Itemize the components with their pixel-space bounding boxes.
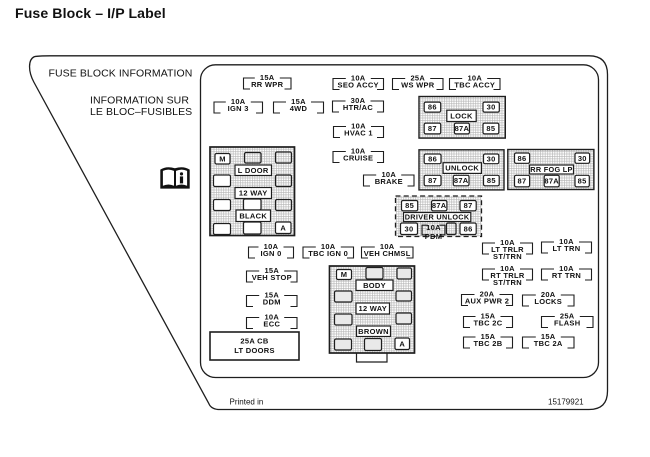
svg-text:Fuse Block – I/P Label: Fuse Block – I/P Label bbox=[15, 5, 166, 21]
svg-text:LE BLOC–FUSIBLES: LE BLOC–FUSIBLES bbox=[90, 106, 192, 118]
svg-text:TBC 2C: TBC 2C bbox=[474, 318, 503, 327]
svg-text:FUSE BLOCK INFORMATION: FUSE BLOCK INFORMATION bbox=[49, 68, 193, 80]
svg-text:87A: 87A bbox=[454, 176, 469, 185]
svg-text:ST/TRN: ST/TRN bbox=[493, 278, 522, 287]
svg-text:25A CB: 25A CB bbox=[240, 336, 268, 345]
svg-text:DDM: DDM bbox=[263, 297, 281, 306]
svg-text:RT TRN: RT TRN bbox=[552, 271, 581, 280]
svg-text:BROWN: BROWN bbox=[358, 327, 389, 336]
svg-text:RR WPR: RR WPR bbox=[251, 80, 283, 89]
svg-text:87: 87 bbox=[428, 176, 437, 185]
svg-text:4WD: 4WD bbox=[290, 104, 308, 113]
svg-text:IGN 3: IGN 3 bbox=[228, 104, 249, 113]
svg-text:FLASH: FLASH bbox=[554, 318, 581, 327]
svg-text:15179921: 15179921 bbox=[548, 397, 584, 406]
svg-text:87A: 87A bbox=[432, 201, 447, 210]
svg-text:M: M bbox=[219, 154, 226, 163]
svg-text:PDM: PDM bbox=[425, 232, 443, 241]
svg-text:WS WPR: WS WPR bbox=[401, 80, 435, 89]
svg-text:87A: 87A bbox=[544, 177, 559, 186]
svg-text:LT TRN: LT TRN bbox=[553, 244, 581, 253]
svg-text:LT DOORS: LT DOORS bbox=[234, 346, 275, 355]
svg-text:86: 86 bbox=[518, 154, 527, 163]
svg-text:30: 30 bbox=[405, 224, 414, 233]
svg-text:86: 86 bbox=[428, 154, 437, 163]
svg-text:85: 85 bbox=[486, 124, 495, 133]
svg-text:HTR/AC: HTR/AC bbox=[343, 103, 373, 112]
svg-text:ST/TRN: ST/TRN bbox=[493, 252, 522, 261]
svg-text:Printed in: Printed in bbox=[230, 398, 264, 407]
svg-text:BODY: BODY bbox=[363, 281, 386, 290]
svg-text:TBC ACCY: TBC ACCY bbox=[454, 80, 495, 89]
svg-text:DRIVER UNLOCK: DRIVER UNLOCK bbox=[405, 213, 470, 222]
svg-text:BLACK: BLACK bbox=[239, 211, 267, 220]
svg-text:LOCK: LOCK bbox=[450, 112, 473, 121]
svg-text:86: 86 bbox=[428, 103, 437, 112]
svg-text:L DOOR: L DOOR bbox=[238, 166, 269, 175]
svg-text:12 WAY: 12 WAY bbox=[358, 304, 387, 313]
svg-text:VEH STOP: VEH STOP bbox=[252, 273, 292, 282]
svg-text:CRUISE: CRUISE bbox=[343, 153, 373, 162]
svg-text:VEH CHMSL: VEH CHMSL bbox=[364, 249, 411, 258]
svg-text:BRAKE: BRAKE bbox=[375, 177, 403, 186]
svg-text:87: 87 bbox=[428, 124, 437, 133]
svg-text:TBC 2A: TBC 2A bbox=[534, 339, 563, 348]
svg-text:30: 30 bbox=[487, 154, 496, 163]
svg-text:12 WAY: 12 WAY bbox=[239, 189, 268, 198]
svg-text:A: A bbox=[280, 223, 286, 232]
svg-text:M: M bbox=[341, 270, 348, 279]
svg-text:85: 85 bbox=[487, 176, 496, 185]
svg-text:85: 85 bbox=[405, 201, 414, 210]
svg-text:86: 86 bbox=[464, 224, 473, 233]
svg-text:A: A bbox=[399, 339, 405, 348]
svg-text:87: 87 bbox=[464, 201, 473, 210]
svg-text:87A: 87A bbox=[455, 124, 470, 133]
svg-text:TBC 2B: TBC 2B bbox=[474, 339, 503, 348]
svg-text:30: 30 bbox=[578, 154, 587, 163]
svg-text:IGN 0: IGN 0 bbox=[260, 249, 281, 258]
svg-text:INFORMATION SUR: INFORMATION SUR bbox=[90, 94, 189, 106]
svg-text:10A: 10A bbox=[426, 223, 441, 232]
svg-text:SEO ACCY: SEO ACCY bbox=[338, 80, 379, 89]
svg-text:ECC: ECC bbox=[263, 319, 280, 328]
svg-text:30: 30 bbox=[487, 103, 496, 112]
svg-text:RR FOG LP: RR FOG LP bbox=[530, 165, 572, 174]
svg-text:85: 85 bbox=[578, 177, 587, 186]
svg-text:TBC IGN 0: TBC IGN 0 bbox=[308, 249, 348, 258]
svg-text:AUX PWR 2: AUX PWR 2 bbox=[465, 296, 509, 305]
svg-text:HVAC 1: HVAC 1 bbox=[344, 128, 373, 137]
svg-text:87: 87 bbox=[518, 177, 527, 186]
svg-text:LOCKS: LOCKS bbox=[534, 297, 562, 306]
svg-text:UNLOCK: UNLOCK bbox=[445, 164, 479, 173]
